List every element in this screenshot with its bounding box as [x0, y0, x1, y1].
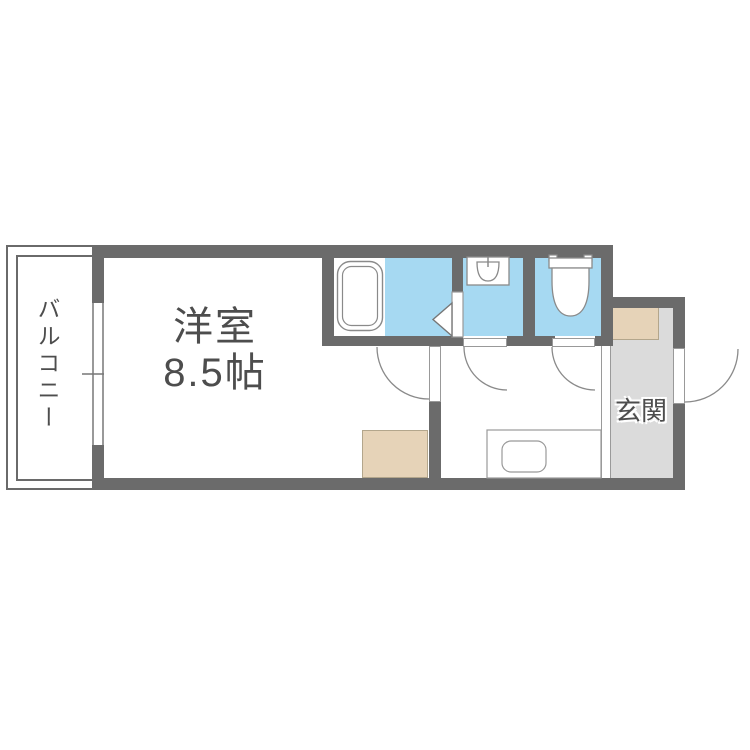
storage-box	[362, 430, 428, 478]
wall-washroom-toilet	[523, 258, 535, 346]
shoe-cabinet	[612, 307, 659, 340]
wall-toilet-right	[601, 258, 613, 345]
wall-bottom	[92, 478, 685, 490]
kitchen-sink-icon	[487, 430, 601, 478]
room-bathroom-floor	[385, 258, 452, 336]
room-toilet-floor	[535, 258, 601, 336]
wall-room-right-lower	[429, 401, 441, 478]
washroom-door-leaf	[463, 338, 507, 347]
room-washroom-floor	[463, 258, 523, 336]
wall-wet-bottom-mid	[507, 336, 555, 346]
floor-plan: 洋室 8.5帖 バルコニー 玄関	[0, 0, 750, 750]
wall-left-upper	[92, 245, 104, 303]
western-room-label: 洋室 8.5帖	[130, 304, 300, 396]
western-room-size: 8.5帖	[130, 350, 300, 396]
wall-bath-washroom	[452, 258, 463, 294]
western-room-name: 洋室	[130, 304, 300, 350]
main-room-door-swing-arc	[377, 347, 429, 399]
wall-bath-left	[322, 258, 334, 336]
balcony-window	[92, 303, 104, 445]
toilet-door-swing-arc	[552, 347, 595, 390]
front-door-leaf	[673, 348, 685, 404]
toilet-door-leaf	[552, 338, 595, 347]
main-room-door-leaf	[429, 346, 441, 402]
wall-wet-bottom-right	[595, 336, 613, 346]
balcony-label: バルコニー	[34, 297, 64, 432]
front-door-swing-arc	[685, 349, 738, 402]
wall-top	[92, 245, 613, 258]
wall-entrance-right-lower	[673, 403, 685, 483]
washroom-door-swing-arc	[464, 347, 507, 390]
bathtub-icon	[338, 262, 383, 331]
wall-entrance-right-upper	[673, 297, 685, 348]
wall-wet-bottom-left	[322, 336, 463, 346]
entrance-step-line	[601, 345, 602, 478]
entrance-label: 玄関	[608, 391, 674, 428]
